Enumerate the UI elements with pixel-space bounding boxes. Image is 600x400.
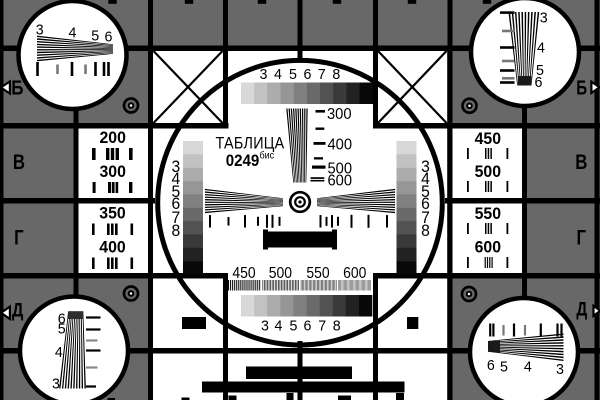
svg-text:6: 6 [535,75,543,91]
svg-text:4: 4 [69,25,77,41]
svg-text:3: 3 [36,22,44,38]
svg-text:4: 4 [55,345,63,361]
svg-text:7: 7 [318,318,326,334]
svg-text:550: 550 [475,205,501,223]
svg-text:300: 300 [327,106,352,123]
svg-text:Д: Д [12,299,24,321]
svg-text:5: 5 [91,28,99,44]
svg-text:3: 3 [556,362,564,378]
svg-text:5: 5 [289,66,297,82]
svg-text:550: 550 [306,265,329,282]
svg-text:400: 400 [99,238,125,256]
svg-text:450: 450 [232,265,255,282]
svg-text:4: 4 [524,359,532,375]
svg-text:5: 5 [289,318,297,334]
svg-text:В: В [13,151,25,174]
svg-text:500: 500 [269,265,292,282]
svg-text:5: 5 [500,359,508,375]
svg-text:6: 6 [105,29,113,45]
svg-text:600: 600 [475,238,501,256]
svg-text:6: 6 [304,318,312,334]
svg-text:450: 450 [475,130,501,148]
svg-text:Г: Г [576,227,586,250]
svg-text:8: 8 [171,222,180,240]
svg-text:6: 6 [487,358,495,374]
svg-text:6: 6 [304,66,312,82]
svg-text:350: 350 [99,204,125,222]
svg-text:300: 300 [99,163,125,181]
svg-text:В: В [575,151,587,174]
svg-text:5: 5 [58,321,66,337]
svg-text:Д: Д [576,298,587,320]
svg-text:ТАБЛИЦА: ТАБЛИЦА [215,135,284,153]
svg-text:бис: бис [260,150,275,162]
svg-text:Г: Г [14,227,24,250]
svg-text:500: 500 [475,163,501,181]
svg-text:200: 200 [99,129,125,147]
svg-text:7: 7 [318,66,326,82]
svg-text:Б: Б [576,76,587,99]
svg-text:600: 600 [328,172,353,189]
svg-text:3: 3 [540,10,548,26]
svg-text:8: 8 [421,222,430,240]
svg-text:8: 8 [332,66,340,82]
svg-text:4: 4 [274,318,282,334]
svg-text:Б: Б [11,76,23,99]
svg-text:600: 600 [343,265,366,282]
svg-text:4: 4 [274,66,282,82]
svg-text:4: 4 [537,40,545,56]
svg-text:8: 8 [333,318,341,334]
svg-text:0249: 0249 [226,152,260,170]
svg-text:3: 3 [260,66,268,82]
svg-text:400: 400 [328,136,353,153]
svg-text:3: 3 [261,318,269,334]
svg-text:3: 3 [52,376,60,392]
